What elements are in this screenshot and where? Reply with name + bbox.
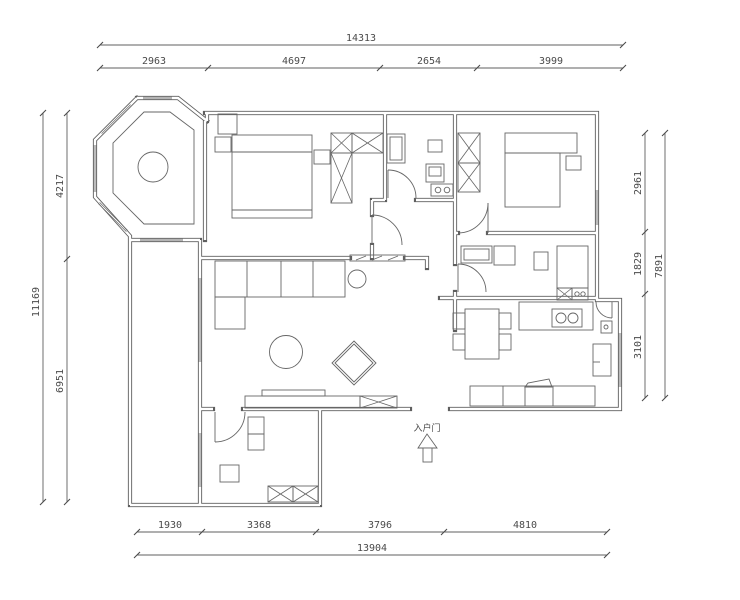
nightstand-right [314,150,330,164]
dim-top-seg4: 3999 [539,56,563,67]
dim-right-total: 7891 [654,254,665,278]
bedroom2-door [458,203,488,233]
study-door [215,412,245,442]
dim-bottom-seg2: 3368 [247,520,271,531]
dim-left-total: 11169 [31,287,42,317]
sofa [215,261,345,329]
bed2 [505,153,560,207]
dim-top-seg2: 4697 [282,56,306,67]
entry-arrow-icon [418,434,437,448]
dim-bottom-seg4: 4810 [513,520,537,531]
bathroom2-door [458,264,486,292]
chair [453,334,465,350]
dim-left-seg2: 6951 [55,369,66,393]
floor-plan-drawing: 14313 2963 4697 2654 3999 11169 4217 695… [0,0,740,600]
dim-left-seg1: 4217 [55,174,66,198]
shelf [248,434,264,450]
nightstand-left [215,137,231,152]
dining-table [465,309,499,359]
windows [94,97,621,487]
wardrobe-study [268,486,318,502]
toilet2 [534,252,548,270]
armchair-rotated [332,341,376,385]
dim-right-seg3: 3101 [633,335,644,359]
sliding-opening [350,255,405,261]
bed1 [232,135,312,218]
wall-lines [95,98,620,505]
kitchen-door [596,302,612,318]
doors [215,170,612,442]
floor-plan-canvas: 14313 2963 4697 2654 3999 11169 4217 695… [0,0,740,600]
wardrobe-hall [458,133,480,192]
shower2 [557,246,588,288]
dimension-top: 14313 2963 4697 2654 3999 [97,33,626,71]
wardrobe-bedroom1 [331,133,383,203]
switch-box [601,321,612,333]
bathroom2-fixtures [461,246,588,300]
dim-bottom-seg3: 3796 [368,520,392,531]
bedroom2-furniture [458,133,581,207]
dim-bottom-total: 13904 [357,543,387,554]
study-furniture [220,417,318,502]
chair [499,334,511,350]
bay-room [113,112,237,224]
dim-top-seg1: 2963 [142,56,166,67]
wall-core-lines [95,98,620,505]
chair [499,313,511,329]
cabinet2 [494,246,515,265]
dim-bottom-seg1: 1930 [158,520,182,531]
shelf [248,417,264,434]
headboard [505,133,577,153]
fridge [593,344,611,376]
bathroom1-door [388,170,416,198]
nightstand [566,156,581,170]
dimension-left: 11169 4217 6951 [31,110,70,505]
dimension-bottom: 1930 3368 3796 4810 13904 [134,520,610,558]
bathroom1-fixtures [387,134,453,196]
stove [552,309,582,327]
side-table [348,270,366,288]
entrance-label: 入户门 [413,422,440,434]
round-table [138,152,168,182]
desk [220,465,239,482]
living-room-furniture [215,261,397,408]
wall-cabinet [428,140,442,152]
entrance-marker [418,434,437,462]
tv-cabinet [245,390,397,408]
walls [95,98,620,505]
dim-right-seg2: 1829 [633,252,644,276]
coffee-table [270,336,303,369]
bay-inner-outline [113,112,194,224]
dim-right-seg1: 2961 [633,171,644,195]
dimension-right: 2961 1829 3101 7891 [633,130,668,401]
bedroom1-door [372,215,402,245]
burner2 [568,313,578,323]
dim-top-seg3: 2654 [417,56,441,67]
counter-bottom [470,386,595,406]
column-pier [218,114,237,134]
dim-top-total: 14313 [346,33,376,44]
burner1 [556,313,566,323]
kitchen-furniture [453,302,612,406]
bedroom1-furniture [215,133,383,218]
